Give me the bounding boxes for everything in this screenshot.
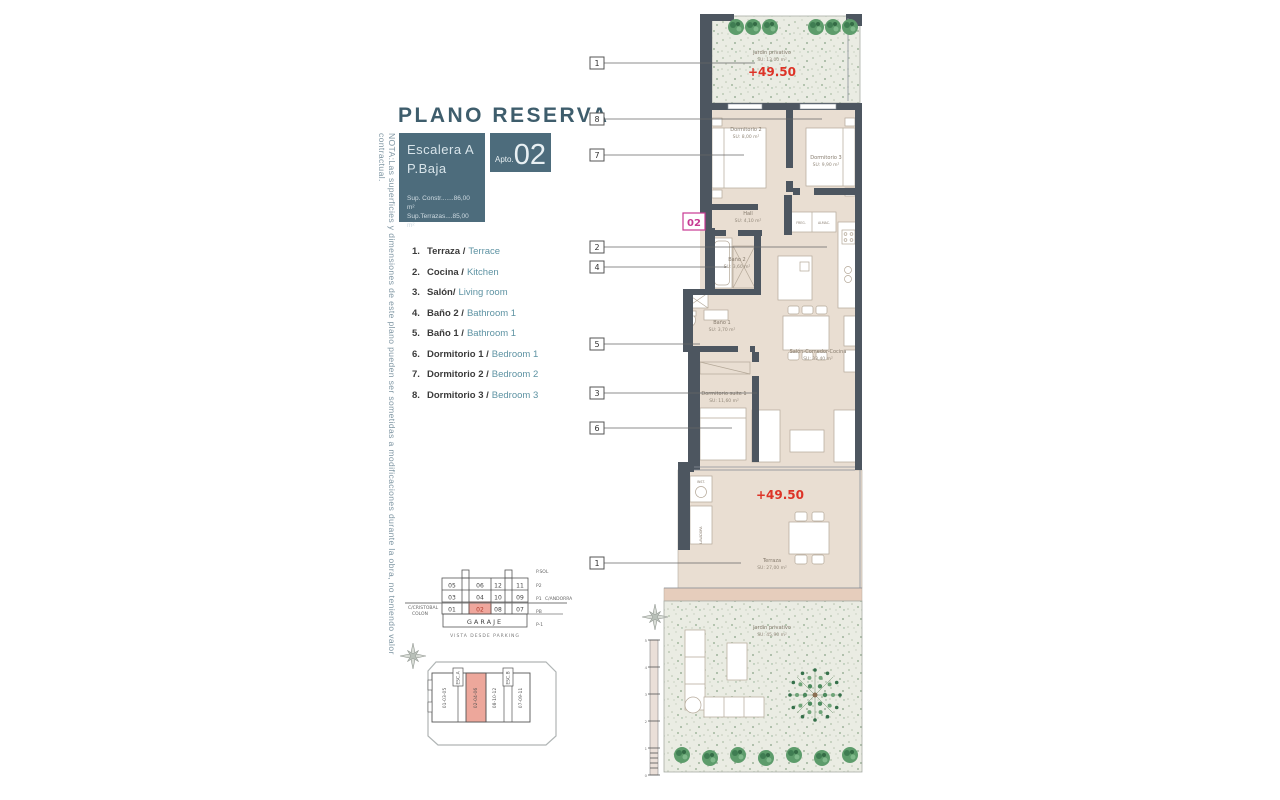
floorplan-drawing: Jardín privativo SU: 13,00 m² +49.50 Dor… — [0, 0, 1280, 800]
level-terrace: +49.50 — [756, 488, 804, 502]
label-hall: Hall — [743, 211, 753, 217]
wall-right — [855, 103, 862, 470]
label-inst: INST. — [697, 480, 705, 484]
svg-text:3: 3 — [645, 692, 648, 697]
svg-text:01: 01 — [448, 607, 456, 614]
svg-text:SU: 3,70 m²: SU: 3,70 m² — [709, 327, 736, 333]
svg-text:P2: P2 — [536, 583, 542, 589]
garden-pouf — [685, 697, 701, 713]
wall-terrace-left — [678, 462, 690, 550]
label-lavadora: LAVADORA — [699, 526, 703, 544]
svg-text:03: 03 — [448, 595, 456, 602]
siteplan-esca: ESC.A — [456, 670, 462, 684]
label-jardin-top: Jardín privativo — [752, 49, 791, 56]
level-top: +49.50 — [748, 65, 796, 79]
wall-left-bedrooms — [700, 103, 712, 228]
svg-text:SU: 11,60 m²: SU: 11,60 m² — [709, 398, 739, 404]
sink-bano1 — [704, 310, 728, 320]
garden-table — [727, 643, 747, 680]
svg-text:07: 07 — [516, 607, 524, 614]
svg-text:SU: 27,00 m²: SU: 27,00 m² — [757, 565, 787, 571]
callout-5: 5 — [594, 340, 599, 349]
svg-text:04: 04 — [476, 595, 484, 602]
svg-text:06: 06 — [476, 583, 484, 590]
svg-text:COLON: COLON — [412, 611, 428, 617]
unit-number-tag: 02 — [683, 213, 705, 230]
svg-text:SU: 3,60 m²: SU: 3,60 m² — [724, 264, 751, 270]
siteplan-escb: ESC.B — [506, 671, 512, 684]
svg-text:09: 09 — [516, 595, 524, 602]
svg-text:P.SOL: P.SOL — [536, 569, 549, 575]
siteplan: 01-03-05 ESC.A 02-04-06 08-10-12 ESC.B 0… — [400, 643, 556, 745]
callout-8: 8 — [594, 115, 599, 124]
bed-suite — [700, 408, 746, 460]
wall-bano1-left — [683, 289, 693, 352]
svg-text:05: 05 — [448, 583, 456, 590]
callout-1-top: 1 — [594, 59, 599, 68]
garden-paving-strip — [664, 588, 862, 601]
terrace-table — [789, 522, 829, 554]
label-bano2: Baño 2 — [728, 257, 746, 263]
siteplan-block3: 08-10-12 — [492, 688, 498, 709]
svg-text:2: 2 — [645, 719, 648, 724]
siteplan-compass-icon — [400, 643, 426, 669]
scale-bar: 5 4 3 2 1 0 — [645, 638, 660, 778]
plano-reserva-sheet: NOTA:Las superficies y dimensiones de es… — [0, 0, 1280, 800]
svg-text:5: 5 — [645, 638, 648, 643]
svg-text:SU: 4,10 m²: SU: 4,10 m² — [735, 218, 762, 224]
svg-text:08: 08 — [494, 607, 502, 614]
siteplan-block2: 02-04-06 — [473, 688, 479, 709]
siteplan-block1: 01-03-05 — [442, 688, 448, 709]
svg-text:P-1: P-1 — [536, 622, 543, 628]
street-right-label: C/ANDORRA — [545, 596, 573, 602]
svg-text:0: 0 — [645, 773, 648, 778]
label-freg: FREG. — [796, 221, 806, 225]
svg-text:10: 10 — [494, 595, 502, 602]
svg-text:1: 1 — [645, 746, 648, 751]
kitchen-island — [778, 256, 812, 300]
svg-text:PB: PB — [536, 609, 542, 615]
label-almac: ALMAC. — [818, 221, 830, 225]
callout-6: 6 — [594, 424, 599, 433]
keyplan-cell-02: 02 — [476, 607, 484, 614]
wall-garden-left — [700, 14, 712, 103]
bush-icon — [728, 19, 744, 35]
svg-text:4: 4 — [645, 665, 648, 670]
label-suite: Dormitorio suite 1 — [701, 391, 746, 397]
dining-table — [783, 316, 829, 350]
label-terraza: Terraza — [762, 558, 781, 564]
callout-7: 7 — [594, 151, 599, 160]
svg-text:11: 11 — [516, 583, 524, 590]
street-left-label: C/CRISTOBAL — [408, 605, 439, 611]
callout-2: 2 — [594, 243, 599, 252]
callout-3: 3 — [594, 389, 599, 398]
svg-text:SU: 8,00 m²: SU: 8,00 m² — [733, 134, 760, 140]
garage-label: GARAJE — [467, 618, 503, 626]
garden-sofa-horizontal — [704, 697, 764, 717]
siteplan-block4: 07-09-11 — [518, 688, 524, 709]
label-dorm2: Dormitorio 2 — [730, 127, 761, 133]
svg-text:SU: 9,90 m²: SU: 9,90 m² — [813, 162, 840, 168]
svg-text:P1: P1 — [536, 596, 542, 602]
label-salon: Salón-Comedor-Cocina — [790, 348, 847, 355]
label-bano1: Baño 1 — [713, 320, 731, 326]
wall-suite-left — [688, 352, 700, 470]
label-dorm3: Dormitorio 3 — [810, 155, 841, 161]
callout-4: 4 — [594, 263, 599, 272]
svg-text:SU: 45,90 m²: SU: 45,90 m² — [757, 632, 787, 638]
svg-text:SU: 33,40 m²: SU: 33,40 m² — [803, 356, 833, 362]
svg-text:12: 12 — [494, 583, 502, 590]
keyplan-caption: VISTA DESDE PARKING — [450, 633, 520, 639]
callout-1-bottom: 1 — [594, 559, 599, 568]
svg-text:02: 02 — [687, 218, 701, 229]
chair — [788, 306, 799, 314]
label-jardin-bottom: Jardín privativo — [752, 624, 791, 631]
svg-text:SU: 13,00 m²: SU: 13,00 m² — [757, 57, 787, 63]
keyplan: 05 06 12 11 03 04 10 09 01 02 08 07 GARA… — [405, 569, 573, 639]
